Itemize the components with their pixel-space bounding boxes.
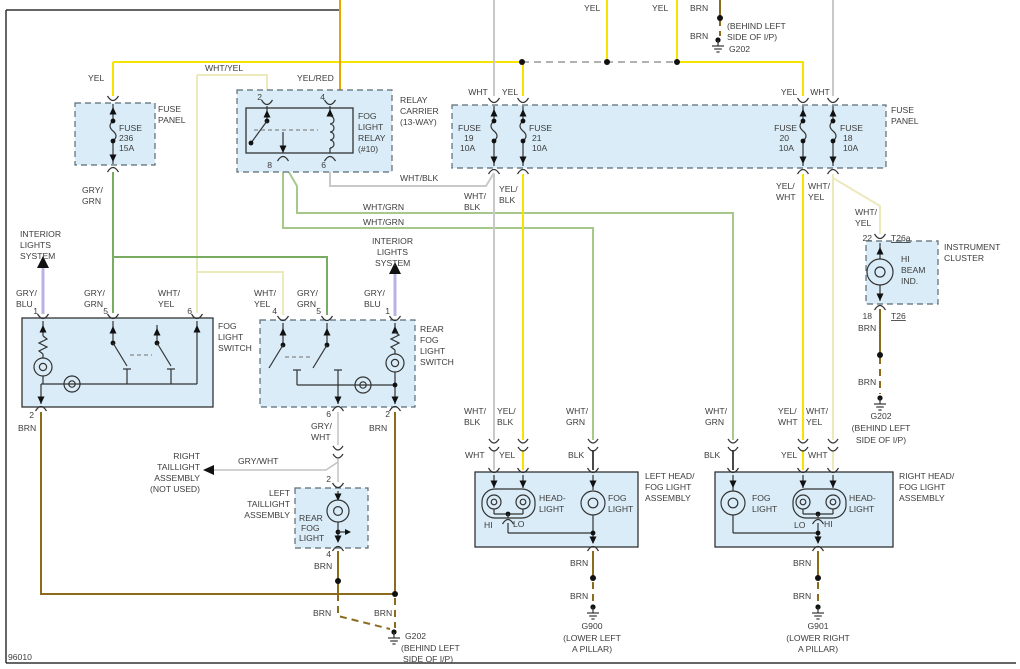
blk-a: BLK (568, 450, 585, 460)
whtgrn-h1: WHT/GRN (363, 202, 404, 212)
grywht-h: GRY/WHT (238, 456, 279, 466)
rear-fog-switch-2: FOG (420, 335, 439, 345)
ils-right-1: INTERIOR (372, 236, 413, 246)
foglight-r-1: FOG (752, 493, 771, 503)
relay-carrier-1: RELAY (400, 95, 428, 105)
grygrn-fuse-1: GRY/ (82, 185, 103, 195)
g202-ic-loc-1: (BEHIND LEFT (852, 423, 911, 433)
rfs-pin5: 5 (316, 306, 321, 316)
ils-left-3: SYSTEM (20, 251, 55, 261)
fuse236-3: 15A (119, 143, 135, 153)
ic-pin22: 22 (862, 233, 872, 243)
g900-loc-2: A PILLAR) (572, 644, 612, 654)
whtyel-r4-2: YEL (254, 299, 270, 309)
whtblk-a-1: WHT/ (464, 406, 487, 416)
yel-a: YEL (499, 450, 515, 460)
g202-top-loc-1: (BEHIND LEFT (727, 21, 786, 31)
grygrn-fuse-2: GRN (82, 196, 101, 206)
right-taillight-arrow (203, 465, 214, 475)
headlight-l-1: HEAD- (539, 493, 566, 503)
brn-g202-top: BRN (690, 31, 708, 41)
relay-carrier-3: (13-WAY) (400, 117, 437, 127)
right-taillight-1: RIGHT (173, 451, 200, 461)
fuse18-1: FUSE (840, 123, 863, 133)
left-headfog-3: ASSEMBLY (645, 493, 691, 503)
grygrn-l-1: GRY/ (84, 288, 105, 298)
yel-fuse236: YEL (88, 73, 104, 83)
gryblu-l-1: GRY/ (16, 288, 37, 298)
yel-f21: YEL (502, 87, 518, 97)
brn-fls: BRN (18, 423, 36, 433)
headlight-r-2: LIGHT (849, 504, 875, 514)
gryblu-l-2: BLU (16, 299, 33, 309)
fuse-panel-left-1: FUSE (158, 104, 181, 114)
fuse21-3: 10A (532, 143, 548, 153)
fuse20-3: 10A (779, 143, 795, 153)
wht-f19: WHT (468, 87, 488, 97)
headlight-r-1: HEAD- (849, 493, 876, 503)
g901-loc-1: (LOWER RIGHT (786, 633, 850, 643)
left-taillight-1: LEFT (269, 488, 291, 498)
right-taillight-3: ASSEMBLY (154, 473, 200, 483)
ground-g202-bottom (388, 629, 400, 644)
inline-connector-yelwht (798, 439, 808, 451)
inline-connector-yelblk (518, 439, 528, 451)
whtgrn-b-1: WHT/ (705, 406, 728, 416)
left-headfog-1: LEFT HEAD/ (645, 471, 695, 481)
rear-fog-switch-4: SWITCH (420, 357, 454, 367)
g901-loc-2: A PILLAR) (798, 644, 838, 654)
wiring-diagram: YELYELBRNBRN(BEHIND LEFTSIDE OF I/P)G202… (0, 0, 1020, 669)
yelwht-a-2: WHT (778, 417, 798, 427)
fuse-panel-left-2: PANEL (158, 115, 186, 125)
fog-relay-1: FOG (358, 111, 377, 121)
rear-fog-switch-3: LIGHT (420, 346, 446, 356)
fls-pin1: 1 (33, 306, 38, 316)
yelred-top: YEL/RED (297, 73, 334, 83)
g202-ic: G202 (870, 411, 891, 421)
brn-feed: BRN (690, 3, 708, 13)
yelblk-down-2: BLK (499, 195, 516, 205)
rear-fog-light-3: LIGHT (299, 533, 325, 543)
whtyel-a-2: YEL (806, 417, 822, 427)
hi-beam-ind-3: IND. (901, 276, 918, 286)
yel-feed-1: YEL (584, 3, 600, 13)
whtyel-cluster-1: WHT/ (855, 207, 878, 217)
ils-left-1: INTERIOR (20, 229, 61, 239)
relay-pin6: 6 (321, 160, 326, 170)
relay-pin2: 2 (257, 92, 262, 102)
fuse-panel-right-box (452, 105, 886, 168)
gryblu-r-1: GRY/ (364, 288, 385, 298)
yel-b: YEL (781, 450, 797, 460)
fuse19-2: 19 (464, 133, 474, 143)
right-headfog-3: ASSEMBLY (899, 493, 945, 503)
brn-tl: BRN (314, 561, 332, 571)
fuse21-1: FUSE (529, 123, 552, 133)
wire-grygrn-to-rfs5 (113, 257, 327, 315)
ic-pin18: 18 (862, 311, 872, 321)
right-taillight-2: TAILLIGHT (157, 462, 201, 472)
inline-connector-whtgrn-right (728, 439, 738, 451)
yelblk-a-2: BLK (497, 417, 514, 427)
fuse18-2: 18 (843, 133, 853, 143)
rfs-pin6: 6 (326, 409, 331, 419)
relay-carrier-2: CARRIER (400, 106, 439, 116)
inline-connector-whtblk (489, 439, 499, 451)
brn-rfs: BRN (369, 423, 387, 433)
lo-right: LO (794, 520, 806, 530)
yelwht-down-1: YEL/ (776, 181, 795, 191)
grywht-v-1: GRY/ (311, 421, 332, 431)
hi-right: HI (824, 519, 833, 529)
g202-top: G202 (729, 44, 750, 54)
grywht-v-2: WHT (311, 432, 331, 442)
brn-ic-1: BRN (858, 323, 876, 333)
g202-bottom-loc-2: SIDE OF I/P) (403, 654, 453, 664)
foglight-r-2: LIGHT (752, 504, 778, 514)
right-headfog-2: FOG LIGHT (899, 482, 946, 492)
whtyel-cluster-2: YEL (855, 218, 871, 228)
wire-yelred-to-relay4 (330, 0, 340, 99)
whtgrn-a-2: GRN (566, 417, 585, 427)
whtblk-relay: WHT/BLK (400, 173, 438, 183)
wht-b: WHT (808, 450, 828, 460)
rear-fog-light-1: REAR (299, 513, 323, 523)
left-headfog-2: FOG LIGHT (645, 482, 692, 492)
fuse20-2: 20 (779, 133, 789, 143)
fog-relay-3: RELAY (358, 133, 386, 143)
fog-relay-4: (#10) (358, 144, 378, 154)
whtgrn-h2: WHT/GRN (363, 217, 404, 227)
g202-top-loc-2: SIDE OF I/P) (727, 32, 777, 42)
wht-a: WHT (465, 450, 485, 460)
ground-g202-cluster (874, 395, 886, 410)
fls-pin2: 2 (29, 410, 34, 420)
whtblk-down-1: WHT/ (464, 191, 487, 201)
inline-connector-whtgrn-left (588, 439, 598, 451)
hi-beam-ind-2: BEAM (901, 265, 925, 275)
whtyel-top: WHT/YEL (205, 63, 243, 73)
grygrn-r5-1: GRY/ (297, 288, 318, 298)
ils-right-3: SYSTEM (375, 258, 410, 268)
instrument-cluster-1: INSTRUMENT (944, 242, 1001, 252)
brn-g900-b: BRN (570, 591, 588, 601)
hi-beam-ind-1: HI (901, 254, 910, 264)
whtyel-l-1: WHT/ (158, 288, 181, 298)
fuse19-1: FUSE (458, 123, 481, 133)
g202-bottom: G202 (405, 631, 426, 641)
lo-left: LO (513, 519, 525, 529)
yel-feed-2: YEL (652, 3, 668, 13)
foglight-l-1: FOG (608, 493, 627, 503)
g202-bottom-loc-1: (BEHIND LEFT (401, 643, 460, 653)
fog-light-switch-2: LIGHT (218, 332, 244, 342)
fuse20-1: FUSE (774, 123, 797, 133)
fuse18-3: 10A (843, 143, 859, 153)
fuse19-3: 10A (460, 143, 476, 153)
relay-pin8: 8 (267, 160, 272, 170)
rfs-pin1: 1 (385, 306, 390, 316)
tl-pin4: 4 (326, 549, 331, 559)
relay-pin4: 4 (320, 92, 325, 102)
brn-bus-2: BRN (374, 608, 392, 618)
rfs-pin4: 4 (272, 306, 277, 316)
fuse-panel-right-2: PANEL (891, 116, 919, 126)
fog-light-switch-3: SWITCH (218, 343, 252, 353)
brn-bus-1: BRN (313, 608, 331, 618)
whtyel-r4-1: WHT/ (254, 288, 277, 298)
grygrn-l-2: GRN (84, 299, 103, 309)
foglight-l-2: LIGHT (608, 504, 634, 514)
yelwht-a-1: YEL/ (778, 406, 797, 416)
wht-f18: WHT (810, 87, 830, 97)
whtblk-a-2: BLK (464, 417, 481, 427)
left-taillight-2: TAILLIGHT (247, 499, 291, 509)
gryblu-r-2: BLU (364, 299, 381, 309)
left-taillight-3: ASSEMBLY (244, 510, 290, 520)
right-headfog-1: RIGHT HEAD/ (899, 471, 955, 481)
t26a: T26a (891, 233, 911, 243)
ground-g901 (812, 604, 824, 619)
hi-left: HI (484, 520, 493, 530)
ground-g900 (587, 604, 599, 619)
grygrn-r5-2: GRN (297, 299, 316, 309)
yelwht-down-2: WHT (776, 192, 796, 202)
rear-fog-switch-1: REAR (420, 324, 444, 334)
rfs-pin2: 2 (385, 409, 390, 419)
ground-g202-top (712, 37, 724, 52)
fuse236-2: 236 (119, 133, 134, 143)
brn-ic-2: BRN (858, 377, 876, 387)
blk-b: BLK (704, 450, 721, 460)
fls-pin6: 6 (187, 306, 192, 316)
fuse-panel-right-1: FUSE (891, 105, 914, 115)
ils-right-2: LIGHTS (377, 247, 408, 257)
brn-g901-a: BRN (793, 558, 811, 568)
inline-connector-grywht (333, 446, 343, 458)
diagram-id: 96010 (8, 652, 32, 662)
fls-pin5: 5 (103, 306, 108, 316)
whtyel-a-1: WHT/ (806, 406, 829, 416)
whtyel-down-2: YEL (808, 192, 824, 202)
right-taillight-4: (NOT USED) (150, 484, 200, 494)
g901: G901 (807, 621, 828, 631)
instrument-cluster-2: CLUSTER (944, 253, 984, 263)
brn-g900-a: BRN (570, 558, 588, 568)
fog-relay-2: LIGHT (358, 122, 384, 132)
g900: G900 (581, 621, 602, 631)
wiring-diagram-page: YELYELBRNBRN(BEHIND LEFTSIDE OF I/P)G202… (0, 0, 1020, 669)
g202-ic-loc-2: SIDE OF I/P) (856, 435, 906, 445)
brn-g901-b: BRN (793, 591, 811, 601)
whtgrn-a-1: WHT/ (566, 406, 589, 416)
headlight-l-2: LIGHT (539, 504, 565, 514)
whtyel-down-1: WHT/ (808, 181, 831, 191)
yel-f20: YEL (781, 87, 797, 97)
ils-left-2: LIGHTS (20, 240, 51, 250)
fuse236-1: FUSE (119, 123, 142, 133)
whtblk-down-2: BLK (464, 202, 481, 212)
rear-fog-light-2: FOG (301, 523, 320, 533)
tl-pin2: 2 (326, 474, 331, 484)
whtgrn-b-2: GRN (705, 417, 724, 427)
fuse21-2: 21 (532, 133, 542, 143)
inline-connector-whtyel (828, 439, 838, 451)
t26: T26 (891, 311, 906, 321)
whtyel-l-2: YEL (158, 299, 174, 309)
yelblk-down-1: YEL/ (499, 184, 518, 194)
g900-loc-1: (LOWER LEFT (563, 633, 622, 643)
fog-light-switch-1: FOG (218, 321, 237, 331)
yelblk-a-1: YEL/ (497, 406, 516, 416)
